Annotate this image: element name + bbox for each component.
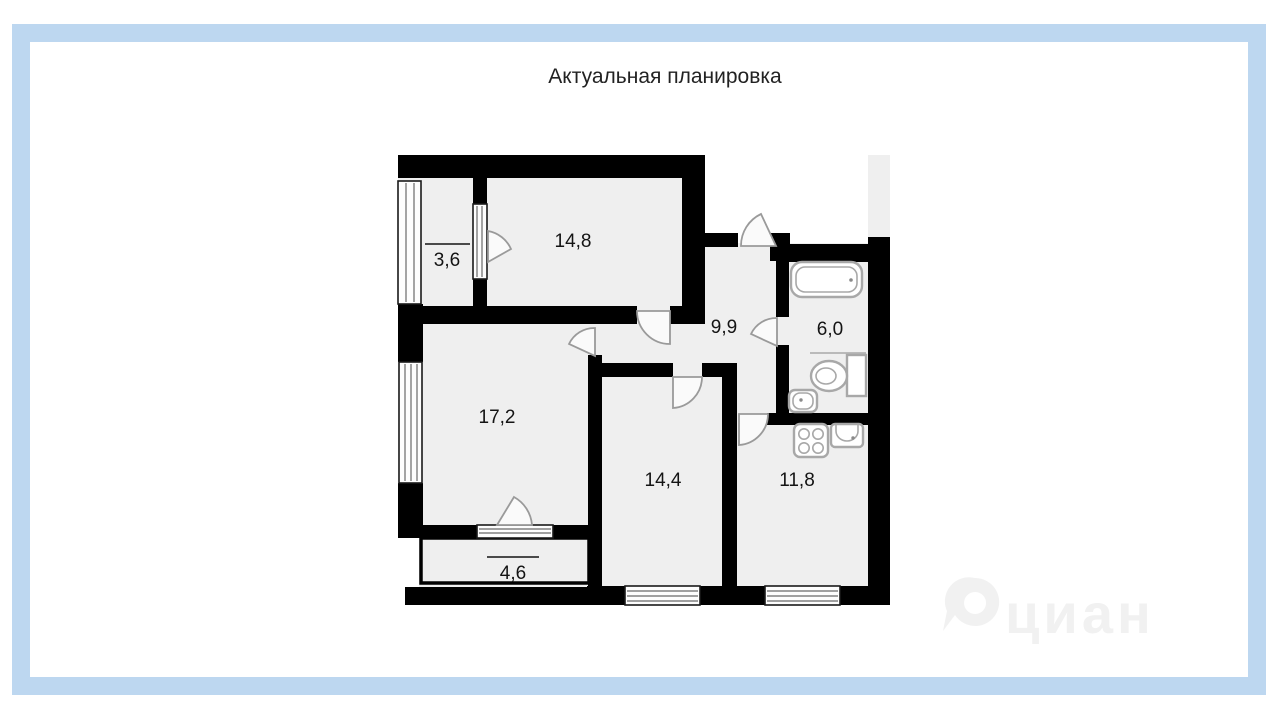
window-loggia-block-upper [473, 204, 487, 279]
wall-segment [398, 306, 637, 324]
wall-segment [587, 586, 625, 605]
room-area-label-balcony: 4,6 [500, 563, 526, 584]
window-loggia-left [398, 181, 421, 304]
window-kitchen-bottom [765, 586, 840, 605]
room-area-label-loggia: 3,6 [434, 250, 460, 271]
room-area-label-room2: 14,4 [645, 470, 682, 491]
wall-segment [473, 278, 487, 308]
wall-segment [705, 233, 738, 247]
page-title: Актуальная планировка [548, 65, 782, 88]
room-area-label-kitchen: 11,8 [779, 470, 815, 491]
wall-segment [600, 363, 673, 377]
watermark: циан [943, 577, 1155, 645]
wall-segment [398, 304, 423, 362]
watermark-text: циан [1005, 582, 1155, 645]
room-area-label-living: 17,2 [479, 407, 516, 428]
wall-segment [588, 355, 602, 586]
wall-segment [722, 363, 737, 586]
bathtub-icon [791, 262, 862, 297]
window-room2-bottom [625, 586, 700, 605]
wall-segment [702, 363, 724, 377]
wall-segment [398, 525, 477, 538]
wall-segment [776, 345, 789, 413]
wall-segment [682, 178, 705, 324]
floor-plan-page: Актуальная планировка [0, 0, 1280, 720]
kitchen-sink-icon [831, 424, 863, 447]
floor-plan: Актуальная планировка [0, 0, 1280, 720]
wall-segment [840, 586, 890, 605]
wall-segment [670, 306, 705, 324]
exterior-cutout-top-right [705, 155, 868, 243]
wall-segment [405, 587, 587, 605]
wall-segment [778, 244, 876, 262]
wash-basin-icon [789, 390, 817, 412]
wall-segment [473, 178, 487, 204]
room-area-label-hallway: 9,9 [711, 317, 737, 338]
watermark-pin-icon [943, 577, 999, 631]
room-area-label-bathroom: 6,0 [817, 319, 843, 340]
wall-segment [868, 237, 890, 605]
stove-icon [794, 424, 828, 457]
wall-segment [553, 525, 591, 538]
wall-segment [700, 586, 765, 605]
wall-segment [776, 261, 789, 317]
window-living-left [399, 362, 422, 483]
wall-segment [398, 155, 705, 178]
room-area-label-bedroom: 14,8 [555, 231, 592, 252]
window-balcony-block [477, 525, 553, 538]
